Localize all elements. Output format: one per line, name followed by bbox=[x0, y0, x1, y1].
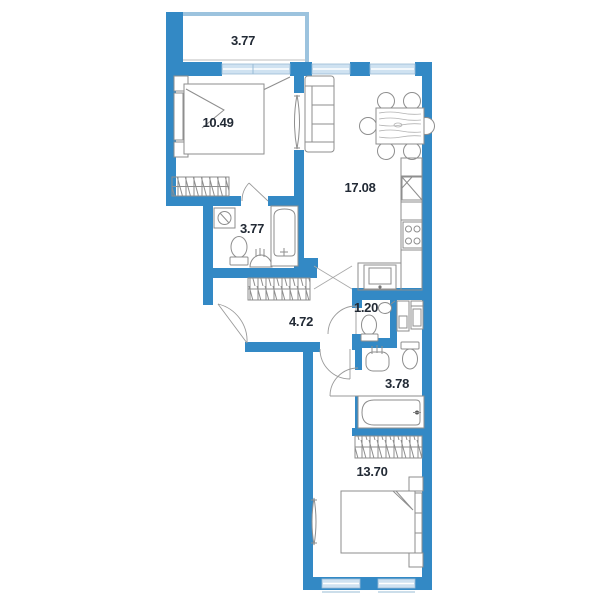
kitchen-sink-icon bbox=[364, 265, 396, 289]
room-label-bathroom-2: 3.78 bbox=[385, 376, 409, 391]
room-label-balcony: 3.77 bbox=[231, 33, 255, 48]
room-label-bathroom-1: 3.77 bbox=[240, 221, 264, 236]
wall-segment bbox=[350, 62, 370, 76]
wall-segment bbox=[303, 352, 313, 590]
bathtub-icon bbox=[271, 206, 298, 266]
wall-segment bbox=[290, 62, 312, 76]
corridor-door-arc bbox=[320, 349, 350, 379]
cabinet-icon bbox=[411, 301, 423, 329]
toilet-icon bbox=[230, 237, 248, 266]
wc-door-arc bbox=[328, 306, 356, 334]
window bbox=[370, 64, 415, 74]
toilet-icon bbox=[361, 315, 378, 341]
window bbox=[312, 64, 350, 74]
room-label-bedroom-1: 10.49 bbox=[202, 115, 233, 130]
wall-segment bbox=[352, 428, 432, 436]
balcony-wall-top bbox=[183, 12, 309, 16]
wall-segment bbox=[294, 76, 304, 93]
appliance-nook bbox=[397, 301, 423, 331]
bathroom-1-fixtures bbox=[214, 206, 298, 267]
nightstand-icon bbox=[409, 553, 423, 567]
floor-plan-drawing: 3.77 10.49 17.08 3.77 4.72 1.20 3.78 13.… bbox=[0, 0, 600, 600]
nightstand-icon bbox=[409, 477, 423, 491]
washer-icon bbox=[397, 301, 409, 331]
room-label-hallway: 4.72 bbox=[289, 314, 313, 329]
washing-machine-icon bbox=[214, 208, 235, 228]
bedroom-2-furniture bbox=[311, 436, 423, 567]
entrance-door-arc bbox=[218, 304, 247, 343]
radiator-icon bbox=[294, 95, 300, 149]
wall-segment bbox=[245, 342, 320, 352]
wall-segment bbox=[203, 206, 213, 305]
dining-table-icon bbox=[376, 108, 424, 144]
kitchen-portal-lines bbox=[314, 266, 352, 289]
wall-segment bbox=[203, 268, 317, 278]
wall-segment bbox=[355, 348, 362, 370]
wall-segment bbox=[166, 196, 241, 206]
window bbox=[378, 579, 415, 592]
room-label-bedroom-2: 13.70 bbox=[356, 464, 387, 479]
wardrobe-icon bbox=[355, 436, 422, 458]
room-label-wc: 1.20 bbox=[354, 300, 378, 315]
fridge-icon bbox=[402, 177, 422, 200]
stove-icon bbox=[403, 222, 422, 248]
wardrobe-icon bbox=[172, 177, 229, 196]
window bbox=[222, 64, 290, 74]
faucet-icon bbox=[378, 285, 381, 288]
bedroom-1-furniture bbox=[172, 76, 264, 196]
hallway-furniture bbox=[248, 278, 310, 300]
wardrobe-icon bbox=[248, 278, 310, 300]
balcony-wall-right bbox=[305, 12, 309, 64]
sofa-icon bbox=[305, 76, 334, 152]
toilet-icon bbox=[401, 342, 419, 369]
wall-segment bbox=[166, 12, 183, 64]
room-label-living-kitchen: 17.08 bbox=[344, 180, 375, 195]
sink-icon bbox=[366, 345, 389, 371]
bathtub-icon bbox=[358, 396, 424, 428]
bathroom1-door-arc bbox=[242, 183, 268, 201]
bathroom2-door-arc bbox=[330, 368, 358, 396]
window bbox=[322, 579, 360, 592]
headboard-icon bbox=[174, 93, 183, 140]
sink-icon bbox=[250, 248, 272, 267]
wall-segment bbox=[304, 258, 318, 268]
floor-plan: 3.77 10.49 17.08 3.77 4.72 1.20 3.78 13.… bbox=[0, 0, 600, 600]
